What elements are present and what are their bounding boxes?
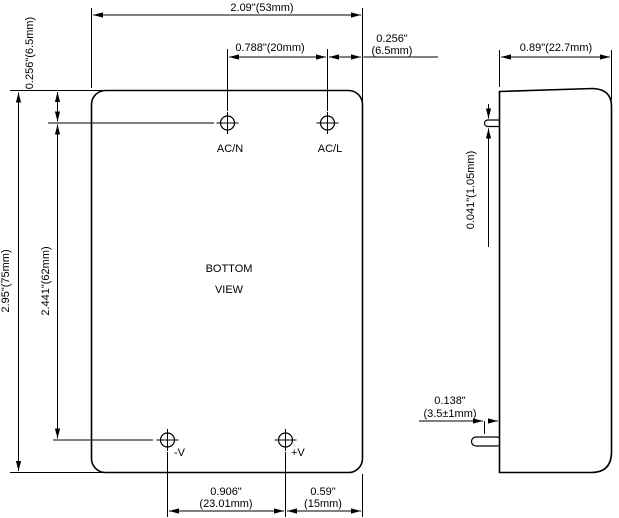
dim-dc-pin-pitch-mm: (23.01mm) <box>199 498 252 510</box>
dim-ac-edge-offset-in: 0.256" <box>376 33 408 45</box>
dimension-drawing: 2.09"(53mm) 0.788"(20mm) 0.256" (6.5mm) … <box>0 0 619 518</box>
label-ac-l: AC/L <box>318 143 342 155</box>
drawing-canvas: 2.09"(53mm) 0.788"(20mm) 0.256" (6.5mm) … <box>0 0 619 518</box>
side-view-bottom-pin <box>472 437 502 446</box>
dim-ac-edge-offset-mm: (6.5mm) <box>372 45 413 57</box>
dim-ac-pin-pitch: 0.788"(20mm) <box>235 42 304 54</box>
dim-overall-width: 2.09"(53mm) <box>230 2 293 14</box>
label-ac-n: AC/N <box>217 143 243 155</box>
side-view: 0.89"(22.7mm) 0.041"(1.05mm) 0.138" (3.5… <box>419 42 612 473</box>
dim-pin-row-span: 2.441"(62mm) <box>40 246 52 315</box>
side-view-case-outline <box>500 89 612 473</box>
dim-pin-protrusion-in: 0.138" <box>434 395 466 407</box>
dim-dc-pin-pitch-in: 0.906" <box>210 486 242 498</box>
label-pos-v: +V <box>291 447 305 459</box>
view-title-line1: BOTTOM <box>206 263 253 275</box>
dim-overall-depth: 0.89"(22.7mm) <box>520 42 592 54</box>
view-title-line2: VIEW <box>215 284 244 296</box>
dim-pin-thickness: 0.041"(1.05mm) <box>465 151 477 230</box>
bottom-view: 2.09"(53mm) 0.788"(20mm) 0.256" (6.5mm) … <box>0 2 438 517</box>
dim-pin-protrusion-mm: (3.5±1mm) <box>423 408 476 420</box>
label-neg-v: -V <box>174 447 186 459</box>
dim-top-edge-offset: 0.256"(6.5mm) <box>24 17 36 89</box>
dim-overall-height: 2.95"(75mm) <box>0 249 12 312</box>
dim-dc-edge-offset-mm: (15mm) <box>304 498 342 510</box>
dim-dc-edge-offset-in: 0.59" <box>310 486 335 498</box>
